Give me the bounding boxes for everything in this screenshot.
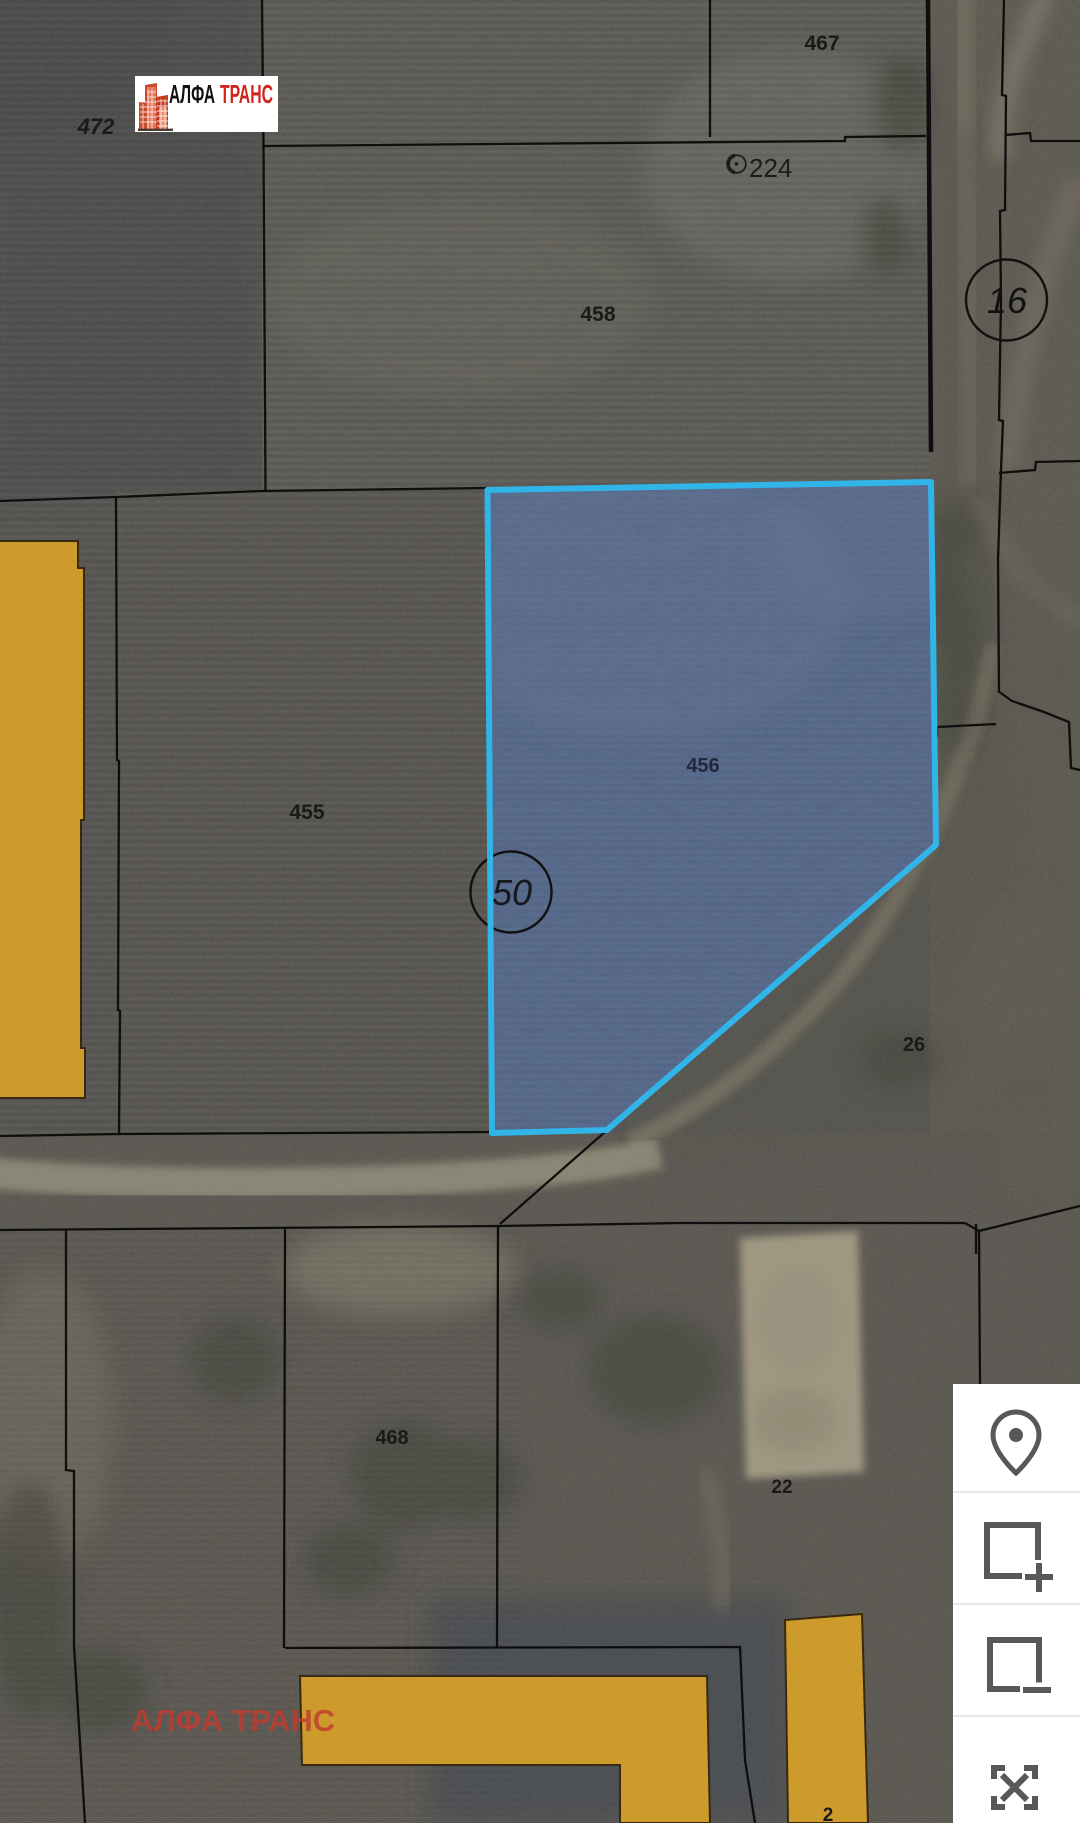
svg-text:22: 22	[771, 1477, 792, 1498]
svg-text:ТРАНС: ТРАНС	[220, 79, 273, 109]
svg-text:467: 467	[804, 32, 839, 55]
svg-text:50: 50	[492, 872, 532, 913]
svg-text:2: 2	[823, 1805, 834, 1823]
svg-text:26: 26	[903, 1034, 925, 1056]
svg-text:АЛФА ТРАНС: АЛФА ТРАНС	[131, 1703, 335, 1738]
svg-text:224: 224	[749, 153, 792, 183]
svg-text:468: 468	[375, 1427, 408, 1449]
svg-text:456: 456	[686, 755, 719, 777]
svg-text:455: 455	[289, 801, 324, 824]
svg-text:472: 472	[77, 114, 115, 139]
svg-text:16: 16	[987, 280, 1028, 321]
svg-text:458: 458	[580, 303, 615, 326]
svg-text:АЛФА: АЛФА	[169, 79, 215, 109]
